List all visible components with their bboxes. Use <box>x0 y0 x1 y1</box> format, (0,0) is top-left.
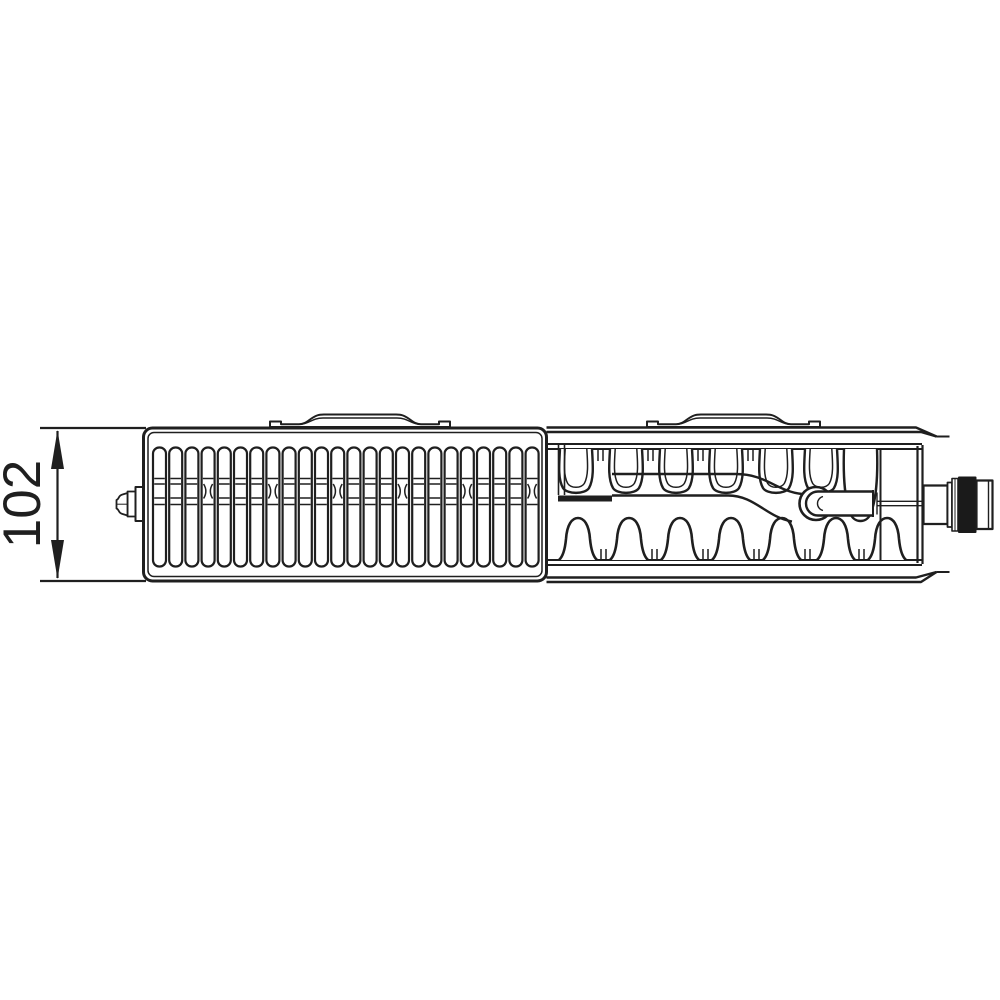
convector-fin-bottom <box>559 518 597 560</box>
dimension-label: 102 <box>0 460 52 548</box>
fin-slat <box>364 448 377 567</box>
valve-end-cap <box>977 481 993 530</box>
fin-slat <box>202 448 215 567</box>
fin-slat <box>218 448 231 567</box>
convector-fin-bottom <box>661 518 699 560</box>
fin-slat <box>250 448 263 567</box>
bracket-outline <box>270 415 450 428</box>
fin-slat <box>461 448 474 567</box>
arrowhead-up-icon <box>51 430 64 469</box>
fin-slat <box>347 448 360 567</box>
pipe-body-fill <box>806 492 873 516</box>
convector-fin-bottom <box>868 518 906 560</box>
fin-slat <box>153 448 166 567</box>
fin-slat <box>185 448 198 567</box>
fin-slat <box>526 448 539 567</box>
fin-slat <box>299 448 312 567</box>
wall-brackets <box>270 415 820 428</box>
fin-slat <box>509 448 522 567</box>
convector-fin-bottom <box>610 518 648 560</box>
fin-slat <box>445 448 458 567</box>
fin-slat <box>234 448 247 567</box>
fin-slat <box>331 448 344 567</box>
valve-body-black <box>958 477 977 534</box>
fin-slat <box>266 448 279 567</box>
fin-slat <box>169 448 182 567</box>
radiator-side-profile-technical-drawing: 102 <box>0 0 1000 1000</box>
valve-neck <box>924 486 948 525</box>
convector-fin-bottom <box>817 518 855 560</box>
plug-body <box>128 492 136 517</box>
bottom-panel-outer-line <box>547 572 937 578</box>
top-panel-second-line <box>547 432 937 437</box>
arrowhead-down-icon <box>51 540 64 579</box>
bracket-outline <box>647 415 820 428</box>
connection-block <box>558 496 612 502</box>
fin-slat <box>380 448 393 567</box>
fin-slat <box>315 448 328 567</box>
pipe-lower-line <box>612 496 792 522</box>
air-vent-plug <box>117 487 144 521</box>
fin-slat <box>283 448 296 567</box>
convector-fin-bottom <box>763 518 801 560</box>
convector-fin-bottom <box>712 518 750 560</box>
fin-slat <box>412 448 425 567</box>
valve-connection <box>924 477 993 534</box>
fin-slat <box>396 448 409 567</box>
fin-slat <box>428 448 441 567</box>
fin-slat <box>493 448 506 567</box>
fin-slat <box>477 448 490 567</box>
